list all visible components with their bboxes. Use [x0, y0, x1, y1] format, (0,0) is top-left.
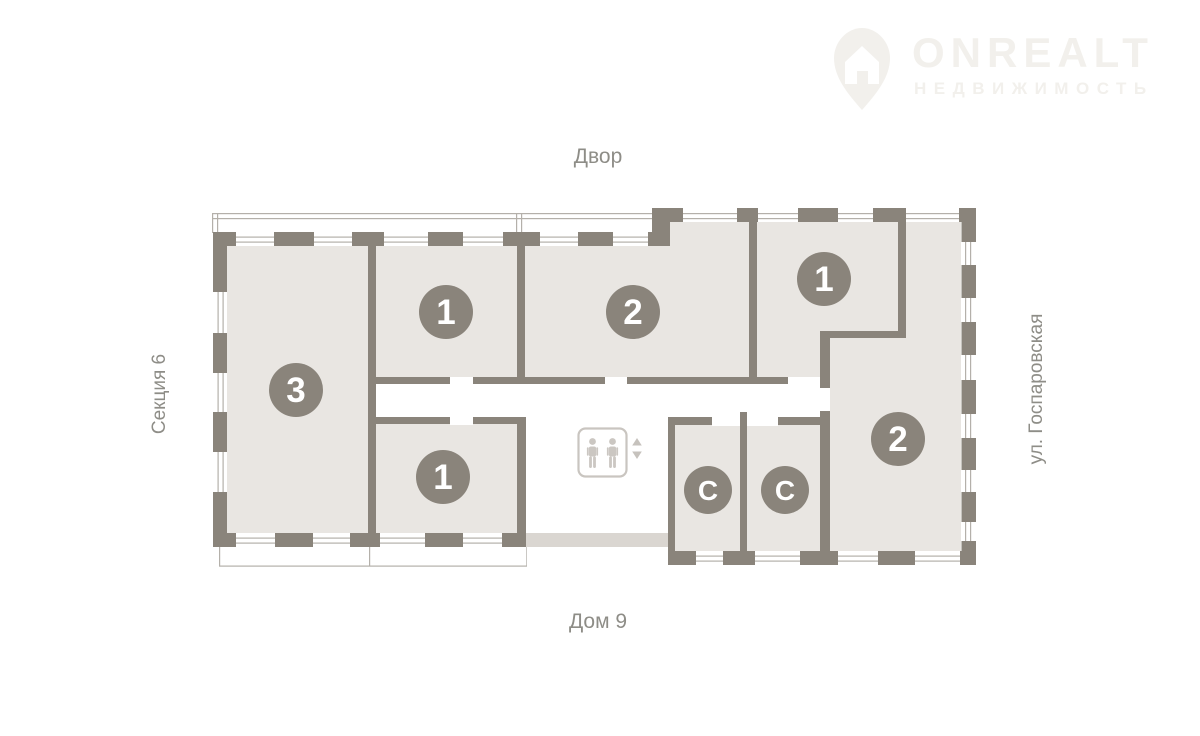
room-badge-label: 2: [888, 420, 907, 459]
room-badge-storage-2: С: [761, 466, 809, 514]
room-badge-label: 2: [623, 293, 642, 332]
room-badge-apartment-2-right: 2: [871, 412, 925, 466]
room-badge-label: 1: [436, 293, 455, 332]
watermark-tagline: НЕДВИЖИМОСТЬ: [914, 80, 1154, 97]
room-badge-storage-1: С: [684, 466, 732, 514]
room-badge-label: 3: [286, 371, 305, 410]
room-badge-label: 1: [433, 458, 452, 497]
room-badge-label: С: [698, 475, 718, 506]
lobby-light-wall: [526, 533, 668, 547]
room-badge-label: 1: [814, 260, 833, 299]
room-badge-apartment-1-right: 1: [797, 252, 851, 306]
house-label: Дом 9: [569, 610, 627, 634]
onrealt-watermark: ONREALT НЕДВИЖИМОСТЬ: [820, 20, 1180, 120]
section-label: Секция 6: [149, 354, 171, 434]
watermark-brand: ONREALT: [912, 32, 1154, 74]
street-label: ул. Госпаровская: [1026, 314, 1048, 465]
room-badge-apartment-1-bottom: 1: [416, 450, 470, 504]
floor-plan-page: ONREALT НЕДВИЖИМОСТЬ Двор Дом 9 Секция 6…: [0, 0, 1200, 736]
room-badge-apartment-1-top: 1: [419, 285, 473, 339]
map-pin-house-icon: [826, 24, 898, 116]
floor-plan: 3 1 2 1 1 С С: [200, 190, 1000, 590]
room-badge-apartment-2-top: 2: [606, 285, 660, 339]
courtyard-label: Двор: [574, 145, 623, 169]
room-badge-apartment-3: 3: [269, 363, 323, 417]
room-badge-label: С: [775, 475, 795, 506]
